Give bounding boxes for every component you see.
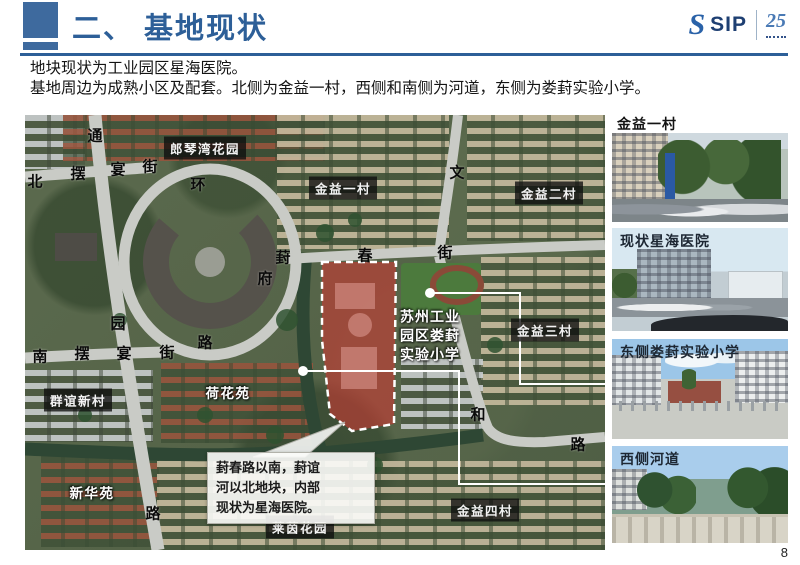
photo-xinghai-hospital: 现状星海医院: [612, 228, 788, 331]
photo-west-river: 西侧河道: [612, 446, 788, 543]
road-label-yuan: 园: [110, 313, 125, 334]
road-label-feng: 葑: [275, 247, 290, 268]
road-label-he: 和: [470, 404, 485, 425]
road-label-lu2: 路: [570, 434, 585, 455]
photo3-barriers: [619, 401, 781, 411]
photo1-cars: [612, 199, 788, 222]
photo3-building-right: [735, 351, 788, 403]
photo-caption-river: 西侧河道: [620, 449, 680, 469]
site-callout-box: 葑春路以南，葑谊 河以北地块，内部 现状为星海医院。: [207, 452, 375, 524]
photo3-building-left: [612, 355, 661, 405]
road-label-huan: 环: [190, 174, 205, 195]
area-label-jinyi3: 金益三村: [511, 319, 579, 342]
road-label-bei: 北: [27, 171, 42, 192]
road-label-lu3: 路: [145, 503, 160, 524]
sip-logo-text: SIP: [710, 13, 747, 37]
road-label-yan2: 宴: [116, 343, 131, 364]
title-decor-square: [23, 2, 58, 38]
photo-caption-school: 东侧娄葑实验小学: [620, 342, 740, 362]
intro-line-2: 基地周边为成熟小区及配套。北侧为金益一村，西侧和南侧为河道，东侧为娄葑实验小学。: [30, 79, 650, 99]
area-label-jinyi2: 金益二村: [515, 182, 583, 205]
photo-jinyi-village: [612, 133, 788, 222]
presentation-slide: 二、 基地现状 S SIP 25 地块现状为工业园区星海医院。 基地周边为成熟小…: [0, 0, 800, 565]
road-label-tong: 通: [87, 125, 102, 146]
intro-line-1: 地块现状为工业园区星海医院。: [30, 59, 650, 79]
anniversary-25-mark: 25: [766, 12, 786, 38]
road-label-bai2: 摆: [74, 343, 89, 364]
photo-caption-jinyi-village: 金益一村: [617, 114, 677, 134]
area-label-hehua: 荷花苑: [206, 382, 251, 402]
photo1-trees: [658, 140, 781, 199]
road-label-fu: 府: [257, 268, 272, 289]
area-label-langqinwan: 郎琴湾花园: [164, 137, 246, 160]
leader-dot-river: [298, 366, 308, 376]
photo2-hospital-building: [637, 249, 711, 298]
header-divider: [20, 53, 788, 56]
photo4-trees-left: [637, 467, 697, 517]
road-label-bai1: 摆: [70, 163, 85, 184]
road-label-jie1: 街: [142, 156, 157, 177]
photo3-tree: [682, 369, 696, 403]
road-label-yan1: 宴: [110, 159, 125, 180]
photo2-car-hood: [651, 315, 788, 331]
road-label-lu1: 路: [197, 332, 212, 353]
school-label: 苏州工业 园区娄葑 实验小学: [400, 308, 460, 365]
satellite-map: 通 北 摆 宴 街 环 文 葑 春 街 府 园 路 南 摆 宴 街 和 路 路 …: [25, 115, 605, 550]
road-label-jie2: 街: [437, 242, 452, 263]
photo1-blue-sign: [665, 153, 676, 199]
page-title: 二、 基地现状: [72, 5, 268, 47]
central-plaza: [195, 247, 225, 277]
page-number: 8: [781, 545, 788, 560]
parking-lot: [55, 233, 97, 261]
leader-dot-school: [425, 288, 435, 298]
photo4-railing: [612, 514, 788, 543]
area-label-xinhua: 新华苑: [70, 482, 115, 502]
road-label-wen: 文: [449, 162, 464, 183]
sip-swoosh-icon: S: [688, 10, 705, 40]
photo-caption-hospital: 现状星海医院: [620, 231, 710, 251]
road-label-chun: 春: [357, 245, 372, 266]
photo2-cars: [612, 298, 788, 317]
road-label-nan: 南: [32, 346, 47, 367]
road-north-baiyan: [25, 167, 155, 177]
title-decor-bar: [23, 42, 58, 50]
area-label-jinyi1: 金益一村: [309, 177, 377, 200]
photo4-trees-right: [721, 463, 788, 517]
area-label-qunyi: 群谊新村: [44, 389, 112, 412]
logo-divider: [756, 10, 757, 40]
road-wen: [439, 115, 458, 256]
intro-text: 地块现状为工业园区星海医院。 基地周边为成熟小区及配套。北侧为金益一村，西侧和南…: [30, 59, 650, 99]
photo-loufeng-school: 东侧娄葑实验小学: [612, 339, 788, 439]
area-label-jinyi4: 金益四村: [451, 499, 519, 522]
road-label-jie3: 街: [159, 342, 174, 363]
sip-logo: S SIP 25: [688, 10, 786, 40]
